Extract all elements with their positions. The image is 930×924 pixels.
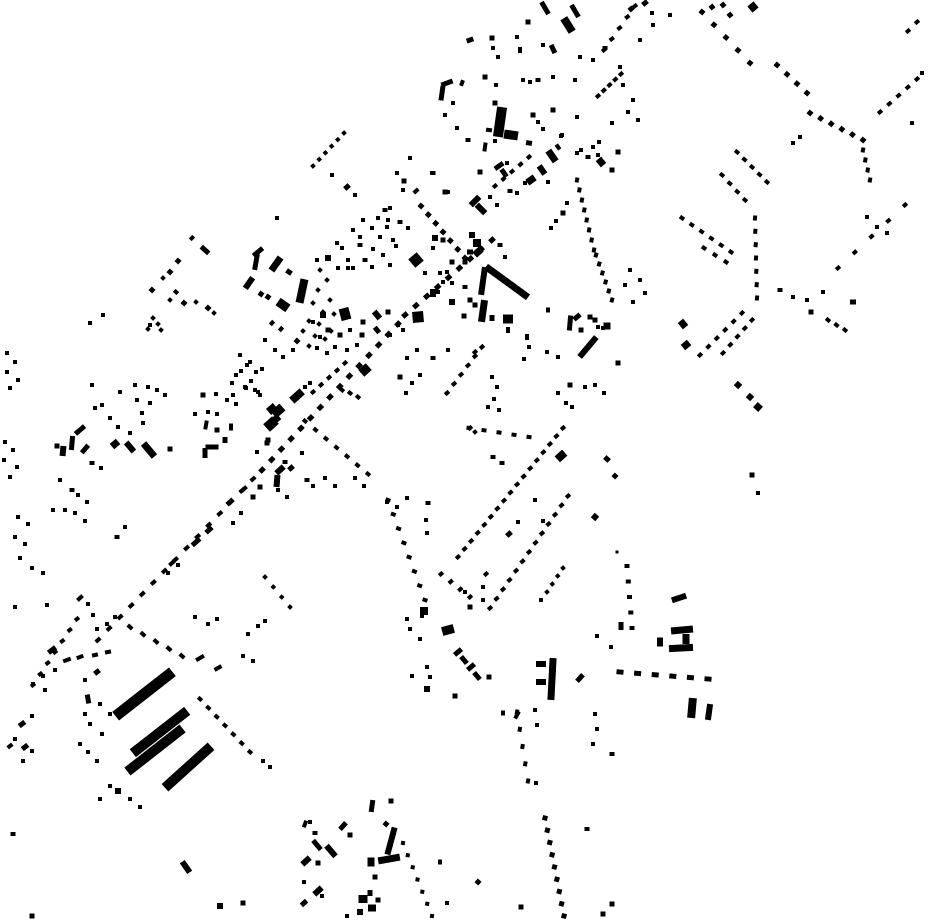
building — [425, 531, 429, 535]
building — [850, 300, 856, 305]
building — [805, 298, 809, 302]
building — [488, 236, 496, 244]
building — [83, 678, 87, 682]
building — [616, 150, 621, 155]
building — [803, 89, 810, 96]
building — [825, 317, 831, 323]
building — [251, 659, 255, 663]
building — [591, 513, 599, 521]
building — [201, 393, 206, 398]
building — [454, 246, 461, 253]
building — [15, 465, 19, 469]
building — [604, 323, 611, 330]
building — [540, 449, 546, 455]
building — [148, 323, 152, 327]
building — [596, 157, 607, 168]
building — [58, 478, 62, 482]
building — [561, 211, 566, 216]
building — [446, 348, 450, 352]
building — [526, 154, 532, 160]
building — [346, 258, 350, 262]
building — [30, 566, 34, 570]
building — [861, 147, 866, 153]
building — [266, 438, 271, 443]
building — [503, 130, 518, 141]
building — [369, 800, 376, 813]
building — [59, 638, 65, 644]
building — [2, 458, 6, 462]
building — [333, 444, 339, 450]
building — [174, 257, 181, 264]
building — [16, 378, 20, 382]
building — [601, 912, 606, 917]
building — [315, 287, 321, 293]
building — [582, 207, 587, 213]
building — [708, 3, 715, 10]
building — [21, 743, 30, 751]
building — [98, 797, 102, 801]
building — [773, 61, 780, 68]
building — [541, 519, 545, 523]
building — [43, 688, 47, 692]
building — [616, 551, 619, 554]
building — [139, 631, 146, 638]
building — [493, 596, 499, 602]
building — [764, 179, 770, 185]
building — [344, 453, 350, 459]
building — [116, 425, 120, 429]
building — [445, 274, 453, 282]
building — [330, 173, 334, 177]
building — [450, 260, 455, 265]
building — [376, 898, 381, 903]
building — [355, 343, 359, 347]
building — [287, 435, 295, 443]
building — [591, 145, 595, 149]
building — [597, 140, 601, 144]
building — [383, 208, 388, 212]
building — [534, 457, 540, 463]
building — [176, 563, 180, 567]
building — [80, 444, 90, 455]
building — [26, 522, 30, 526]
building — [329, 143, 335, 149]
building — [849, 131, 856, 138]
building — [626, 110, 630, 114]
building — [239, 369, 243, 373]
building — [148, 401, 152, 405]
building — [490, 315, 495, 321]
building — [473, 239, 481, 247]
building — [611, 472, 618, 479]
building — [589, 237, 594, 243]
building — [526, 20, 531, 25]
building — [8, 475, 12, 479]
building — [734, 47, 741, 54]
building — [331, 311, 337, 317]
building — [140, 411, 144, 415]
building — [18, 556, 22, 560]
building — [793, 80, 800, 87]
building — [445, 270, 449, 274]
building — [273, 475, 280, 487]
building — [481, 522, 487, 528]
building — [223, 437, 228, 443]
building — [551, 864, 557, 870]
building — [465, 362, 471, 368]
building — [415, 877, 420, 882]
building — [527, 465, 533, 471]
building — [5, 351, 9, 355]
building — [312, 333, 318, 339]
building — [230, 731, 236, 737]
building — [618, 71, 624, 77]
building — [634, 671, 641, 677]
building — [105, 622, 109, 626]
building — [98, 702, 102, 706]
building — [523, 761, 528, 767]
building — [535, 723, 539, 727]
building — [516, 520, 520, 524]
building — [593, 712, 597, 716]
building — [577, 187, 582, 193]
building — [13, 605, 17, 609]
building — [747, 1, 758, 12]
building — [106, 625, 113, 632]
building — [559, 134, 563, 138]
building — [405, 853, 410, 858]
building — [475, 203, 488, 216]
building — [506, 577, 512, 583]
building — [339, 307, 352, 321]
building — [491, 46, 495, 50]
building — [539, 530, 545, 536]
building — [296, 278, 309, 303]
building — [373, 875, 378, 880]
building — [720, 350, 726, 356]
building — [455, 554, 461, 560]
building — [249, 476, 256, 483]
building — [865, 215, 869, 219]
building — [53, 668, 57, 672]
building — [742, 197, 748, 203]
building — [263, 619, 267, 623]
building — [657, 638, 663, 647]
building — [213, 714, 219, 720]
building — [481, 598, 485, 602]
building — [628, 611, 633, 615]
building — [754, 269, 758, 274]
building — [651, 672, 658, 678]
building — [478, 170, 483, 175]
building — [401, 841, 406, 846]
building — [481, 428, 487, 433]
building — [438, 85, 445, 101]
building — [484, 264, 530, 300]
building — [631, 98, 635, 102]
building — [217, 903, 223, 909]
building — [592, 247, 597, 253]
building — [268, 765, 272, 769]
building — [444, 390, 450, 396]
building — [368, 858, 375, 867]
building — [128, 431, 132, 435]
building — [498, 243, 503, 247]
building — [85, 694, 91, 704]
building — [734, 333, 740, 339]
building — [575, 177, 580, 183]
building — [603, 455, 611, 463]
building — [404, 391, 408, 395]
building — [273, 348, 277, 352]
building — [828, 120, 835, 127]
building — [41, 571, 45, 575]
building — [545, 350, 549, 354]
building — [570, 405, 574, 409]
building — [168, 447, 173, 452]
building — [358, 235, 362, 239]
building — [875, 225, 879, 229]
building — [838, 126, 845, 133]
building — [422, 597, 428, 602]
building — [560, 425, 566, 431]
building — [5, 370, 9, 374]
building — [630, 626, 635, 630]
building — [852, 249, 858, 255]
building — [528, 80, 532, 84]
building — [277, 445, 285, 453]
building — [371, 247, 375, 251]
building — [323, 436, 329, 442]
building — [138, 805, 142, 809]
building — [163, 393, 167, 397]
building — [730, 318, 736, 324]
building — [348, 833, 353, 838]
building — [595, 634, 599, 638]
building — [425, 211, 432, 218]
building — [539, 598, 543, 602]
building — [472, 671, 482, 681]
building — [426, 501, 431, 505]
building — [432, 220, 439, 227]
building — [370, 226, 374, 230]
building — [183, 544, 190, 551]
building — [486, 405, 490, 409]
building — [326, 393, 334, 401]
building — [542, 815, 548, 821]
building — [396, 526, 402, 531]
building — [206, 622, 210, 626]
building — [323, 476, 327, 480]
building — [561, 913, 567, 919]
building — [345, 914, 349, 918]
building — [468, 298, 473, 303]
building — [361, 218, 365, 222]
building — [420, 614, 424, 618]
building — [636, 118, 640, 122]
building — [315, 346, 319, 350]
building — [572, 313, 581, 322]
building — [481, 585, 485, 589]
building — [351, 228, 355, 232]
building — [258, 485, 263, 490]
building — [877, 109, 883, 115]
building — [378, 235, 382, 239]
building — [384, 331, 392, 339]
building — [165, 645, 172, 652]
building — [124, 440, 136, 453]
building — [578, 55, 582, 59]
building — [297, 424, 305, 432]
building — [410, 381, 414, 385]
building — [453, 694, 458, 699]
building — [491, 455, 496, 459]
building — [549, 852, 555, 858]
building — [520, 473, 526, 479]
building — [214, 392, 218, 396]
building — [438, 571, 444, 577]
building — [155, 388, 159, 392]
building — [487, 605, 493, 611]
building — [492, 397, 496, 401]
building — [503, 315, 513, 324]
building — [320, 894, 324, 898]
building — [113, 615, 117, 619]
building — [302, 820, 308, 828]
building — [549, 581, 555, 587]
building — [750, 473, 755, 478]
building — [341, 130, 347, 136]
building — [671, 593, 687, 603]
building — [395, 171, 399, 175]
building — [368, 890, 373, 896]
building — [189, 235, 195, 241]
building — [353, 193, 357, 197]
building — [411, 569, 417, 574]
building — [586, 155, 591, 159]
building — [316, 321, 322, 327]
building — [624, 14, 630, 20]
building — [609, 645, 613, 649]
building — [723, 259, 729, 265]
building — [381, 253, 385, 257]
building — [527, 345, 531, 349]
building — [520, 744, 525, 750]
building — [83, 712, 87, 716]
building — [293, 337, 300, 344]
building — [466, 662, 476, 672]
building — [555, 573, 561, 579]
building — [446, 190, 450, 194]
building — [447, 237, 454, 244]
building — [595, 93, 601, 99]
building — [505, 161, 509, 165]
building — [495, 203, 499, 207]
building — [313, 831, 318, 835]
building — [749, 164, 755, 170]
building — [511, 432, 517, 437]
building — [333, 484, 337, 488]
building — [418, 637, 422, 641]
building — [910, 121, 914, 125]
building — [276, 298, 291, 312]
building — [338, 821, 348, 831]
building — [128, 602, 135, 609]
building — [668, 13, 672, 17]
building — [141, 441, 157, 459]
building — [495, 385, 499, 389]
building — [473, 303, 478, 308]
building — [325, 255, 331, 261]
building — [315, 258, 319, 262]
building — [308, 381, 312, 385]
building — [487, 675, 492, 680]
building — [368, 905, 376, 912]
building — [450, 281, 454, 285]
building — [593, 383, 597, 387]
building — [616, 361, 621, 366]
building — [556, 391, 560, 395]
building — [536, 78, 541, 82]
building — [621, 83, 625, 87]
building — [93, 406, 97, 410]
building — [30, 914, 35, 919]
building — [806, 109, 813, 116]
building — [544, 589, 550, 595]
building — [565, 493, 571, 499]
building — [601, 87, 607, 93]
building — [318, 382, 324, 388]
building — [559, 901, 565, 907]
building — [193, 412, 197, 416]
building — [606, 82, 612, 88]
building — [310, 389, 316, 395]
building — [472, 353, 478, 359]
building — [417, 583, 423, 588]
building — [110, 439, 121, 450]
building — [11, 832, 16, 836]
building — [712, 252, 718, 258]
building — [638, 278, 642, 282]
building — [905, 84, 911, 90]
building — [547, 658, 556, 700]
building — [863, 157, 868, 163]
building — [483, 75, 488, 80]
building — [406, 554, 412, 559]
building — [278, 326, 284, 332]
building — [596, 325, 600, 329]
building — [536, 679, 546, 685]
building — [359, 895, 368, 903]
building — [412, 188, 419, 195]
building — [13, 535, 17, 539]
building — [287, 464, 295, 472]
building — [533, 498, 537, 502]
building — [463, 590, 467, 594]
building — [424, 686, 430, 692]
building — [868, 233, 874, 239]
building — [722, 327, 728, 333]
building — [701, 245, 707, 251]
building — [756, 491, 760, 495]
building — [308, 820, 312, 824]
building — [274, 464, 285, 475]
building — [602, 391, 606, 395]
building — [357, 909, 363, 915]
building — [501, 497, 507, 503]
building — [320, 312, 326, 318]
building — [340, 246, 344, 250]
